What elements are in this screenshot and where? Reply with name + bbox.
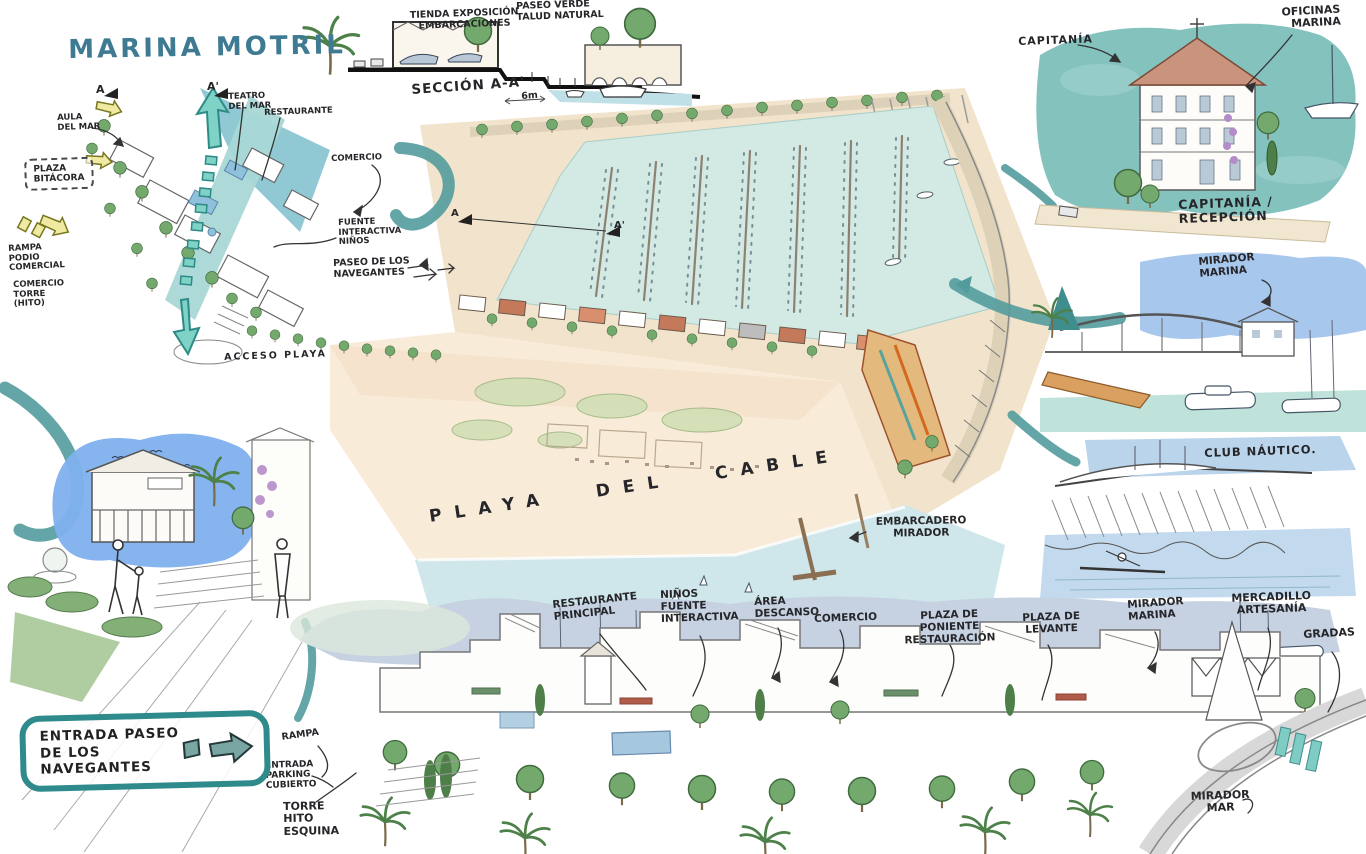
fountain bbox=[43, 548, 67, 572]
entrada-box-line2: DE LOS NAVEGANTES bbox=[40, 744, 152, 778]
entrada-box-label: ENTRADA PASEO DE LOS NAVEGANTES bbox=[25, 725, 182, 780]
panorama-palms bbox=[361, 793, 1112, 854]
section-drawing bbox=[301, 8, 700, 106]
marina-motril-sketch: { "title": "MARINA MOTRIL", "entry_box":… bbox=[0, 0, 1366, 854]
mirador-marina-inset bbox=[1032, 252, 1366, 432]
stage: MARINA MOTRILAA'AULA DEL MARTEATRO DEL M… bbox=[0, 0, 1366, 854]
panorama-tower bbox=[585, 656, 611, 704]
pool bbox=[612, 731, 671, 755]
marina-tower-building bbox=[1242, 322, 1294, 356]
capitania-inset bbox=[1035, 18, 1358, 242]
bottom-panorama bbox=[290, 596, 1366, 854]
club-nautico-inset bbox=[1040, 436, 1356, 599]
entrada-box-line1: ENTRADA PASEO bbox=[39, 725, 179, 745]
entrada-paseo-navegantes-box: ENTRADA PASEO DE LOS NAVEGANTES bbox=[19, 710, 271, 793]
yellow-arrows bbox=[18, 96, 124, 241]
entrada-arrow-icon bbox=[182, 731, 257, 767]
